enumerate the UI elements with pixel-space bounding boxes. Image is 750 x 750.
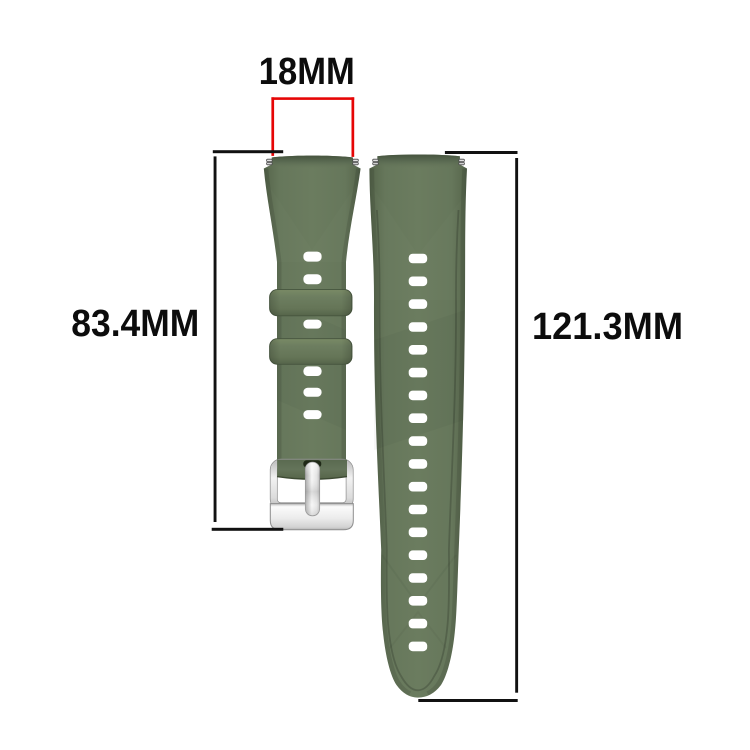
svg-text:121.3MM: 121.3MM	[532, 306, 683, 348]
svg-text:83.4MM: 83.4MM	[71, 303, 199, 345]
svg-text:18MM: 18MM	[259, 51, 355, 93]
